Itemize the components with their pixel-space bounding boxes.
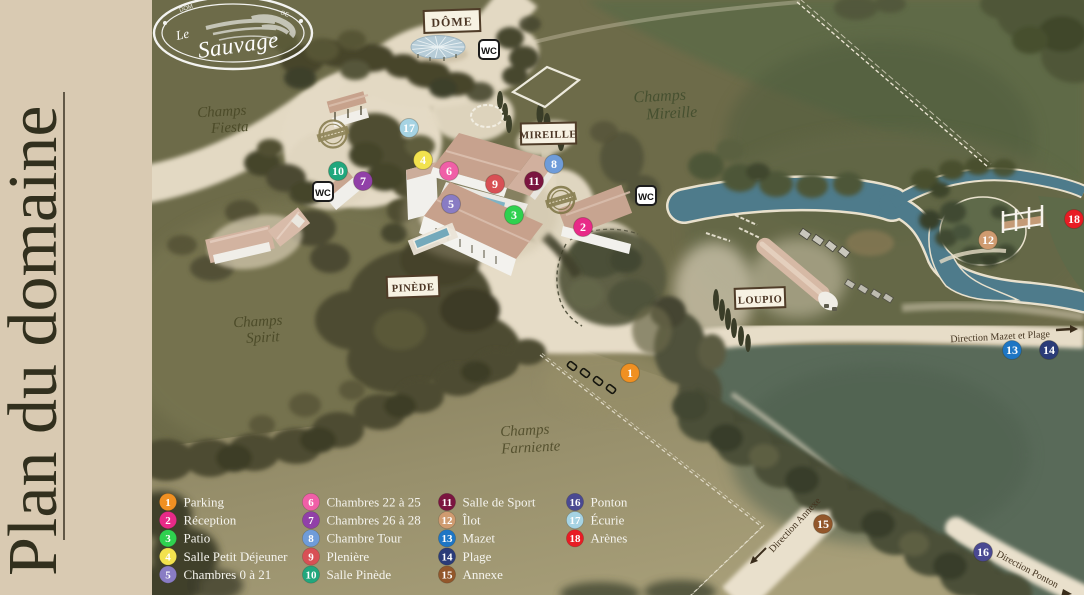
svg-text:14: 14 [1043, 343, 1055, 357]
svg-text:MIREILLE: MIREILLE [519, 129, 577, 141]
svg-text:WC: WC [638, 192, 654, 203]
svg-text:Salle de Sport: Salle de Sport [463, 494, 536, 509]
svg-text:2: 2 [165, 515, 171, 527]
svg-text:Fiesta: Fiesta [210, 119, 249, 137]
svg-text:2: 2 [580, 220, 586, 234]
svg-text:Îlot: Îlot [463, 512, 481, 527]
svg-text:15: 15 [442, 570, 454, 582]
svg-text:17: 17 [570, 515, 582, 527]
svg-text:4: 4 [420, 153, 426, 167]
svg-text:Salle Pinède: Salle Pinède [327, 567, 392, 582]
svg-text:3: 3 [511, 208, 517, 222]
svg-text:Écurie: Écurie [591, 512, 625, 527]
svg-text:7: 7 [308, 515, 314, 527]
svg-text:12: 12 [442, 515, 454, 527]
svg-text:8: 8 [551, 157, 557, 171]
svg-text:18: 18 [570, 533, 582, 545]
svg-text:Champs: Champs [500, 422, 550, 441]
svg-text:Réception: Réception [184, 512, 237, 527]
svg-text:9: 9 [492, 177, 498, 191]
svg-text:Chambres 22 à 25: Chambres 22 à 25 [327, 494, 421, 509]
svg-text:Champs: Champs [633, 87, 686, 107]
svg-text:6: 6 [446, 164, 452, 178]
svg-text:LOUPIO: LOUPIO [738, 294, 783, 307]
svg-text:Arènes: Arènes [591, 531, 628, 546]
svg-text:Mireille: Mireille [645, 104, 698, 124]
svg-text:Farniente: Farniente [500, 438, 561, 457]
svg-text:PINÈDE: PINÈDE [392, 281, 435, 294]
svg-text:Parking: Parking [184, 494, 225, 509]
svg-text:17: 17 [403, 121, 415, 135]
svg-text:Plage: Plage [463, 549, 492, 564]
svg-text:Patio: Patio [184, 531, 211, 546]
svg-text:8: 8 [308, 533, 314, 545]
svg-text:16: 16 [570, 497, 582, 509]
svg-text:1: 1 [165, 497, 171, 509]
svg-text:11: 11 [528, 174, 539, 188]
svg-text:Mazet: Mazet [463, 531, 496, 546]
svg-text:Ponton: Ponton [591, 494, 628, 509]
svg-text:WC: WC [481, 46, 497, 57]
svg-text:12: 12 [982, 233, 994, 247]
svg-text:1: 1 [627, 366, 633, 380]
svg-text:4: 4 [165, 551, 171, 563]
svg-text:Chambres 26 à 28: Chambres 26 à 28 [327, 512, 421, 527]
svg-text:Annexe: Annexe [463, 567, 504, 582]
svg-text:13: 13 [1006, 343, 1018, 357]
svg-text:13: 13 [442, 533, 454, 545]
svg-text:Chambres 0 à 21: Chambres 0 à 21 [184, 567, 272, 582]
svg-text:DÔME: DÔME [431, 14, 473, 29]
svg-text:10: 10 [332, 164, 344, 178]
svg-text:Plan du domaine: Plan du domaine [0, 106, 72, 576]
svg-text:10: 10 [306, 570, 318, 582]
svg-text:9: 9 [308, 551, 314, 563]
svg-text:11: 11 [442, 497, 452, 509]
svg-text:Salle Petit Déjeuner: Salle Petit Déjeuner [184, 549, 289, 564]
svg-text:15: 15 [817, 517, 829, 531]
svg-text:18: 18 [1068, 212, 1080, 226]
svg-text:5: 5 [448, 197, 454, 211]
svg-text:6: 6 [308, 497, 314, 509]
svg-text:Champs: Champs [197, 103, 247, 122]
svg-text:Plenière: Plenière [327, 549, 370, 564]
svg-text:Spirit: Spirit [246, 329, 281, 347]
svg-text:3: 3 [165, 533, 171, 545]
svg-text:5: 5 [165, 570, 171, 582]
svg-text:16: 16 [977, 545, 989, 559]
svg-text:WC: WC [315, 188, 331, 199]
svg-text:14: 14 [442, 551, 454, 563]
svg-text:Chambre Tour: Chambre Tour [327, 531, 403, 546]
svg-text:7: 7 [360, 174, 366, 188]
